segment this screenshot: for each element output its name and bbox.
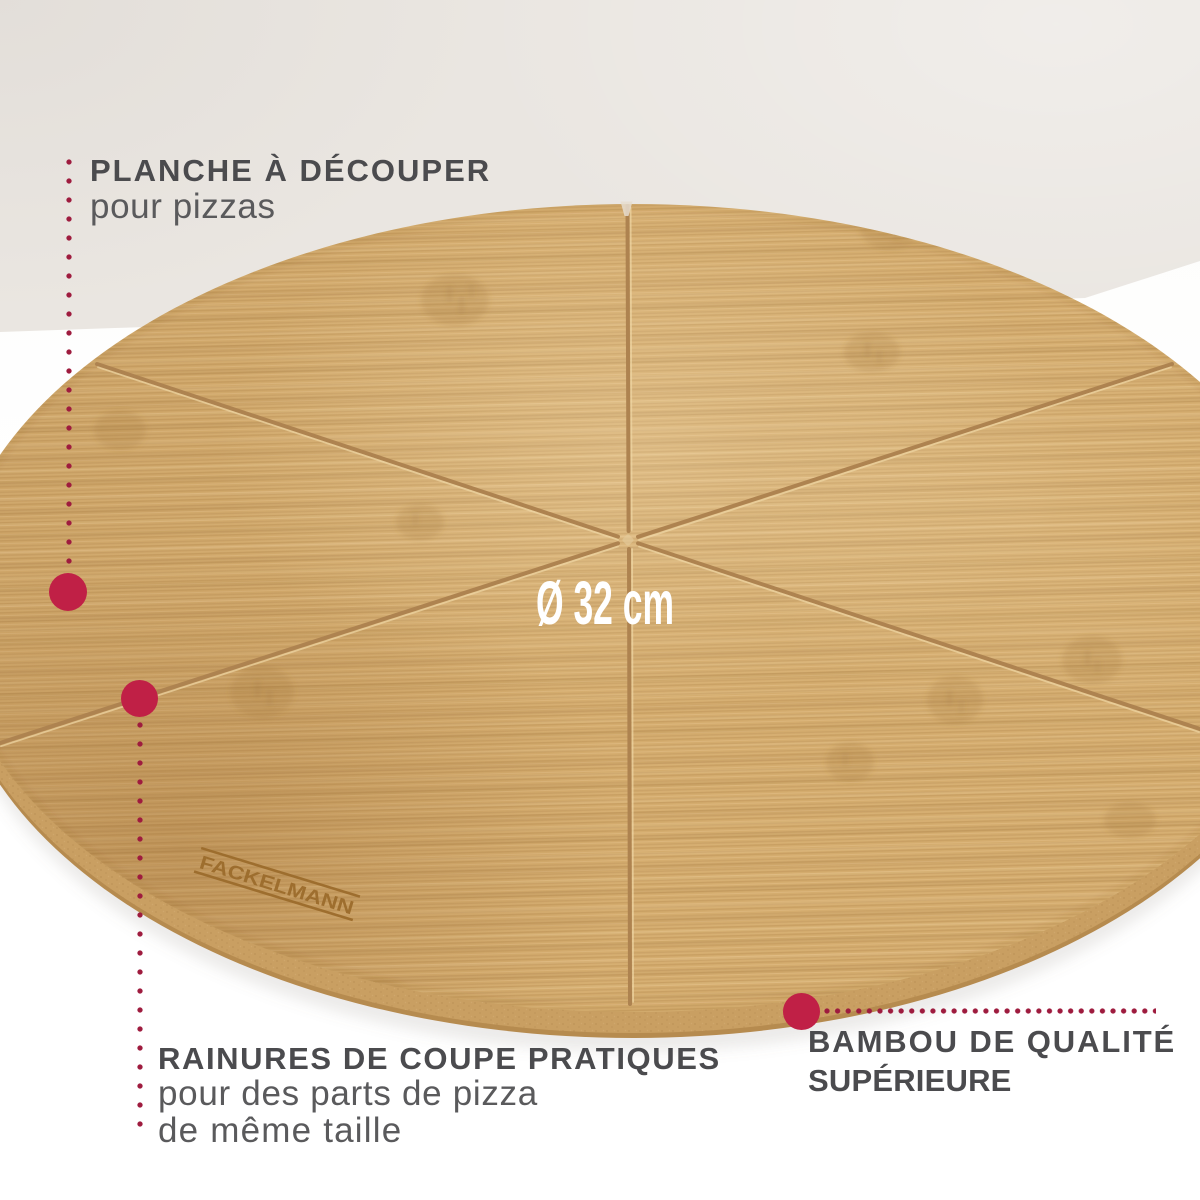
- svg-text:Ø 32 cm: Ø 32 cm: [536, 569, 674, 637]
